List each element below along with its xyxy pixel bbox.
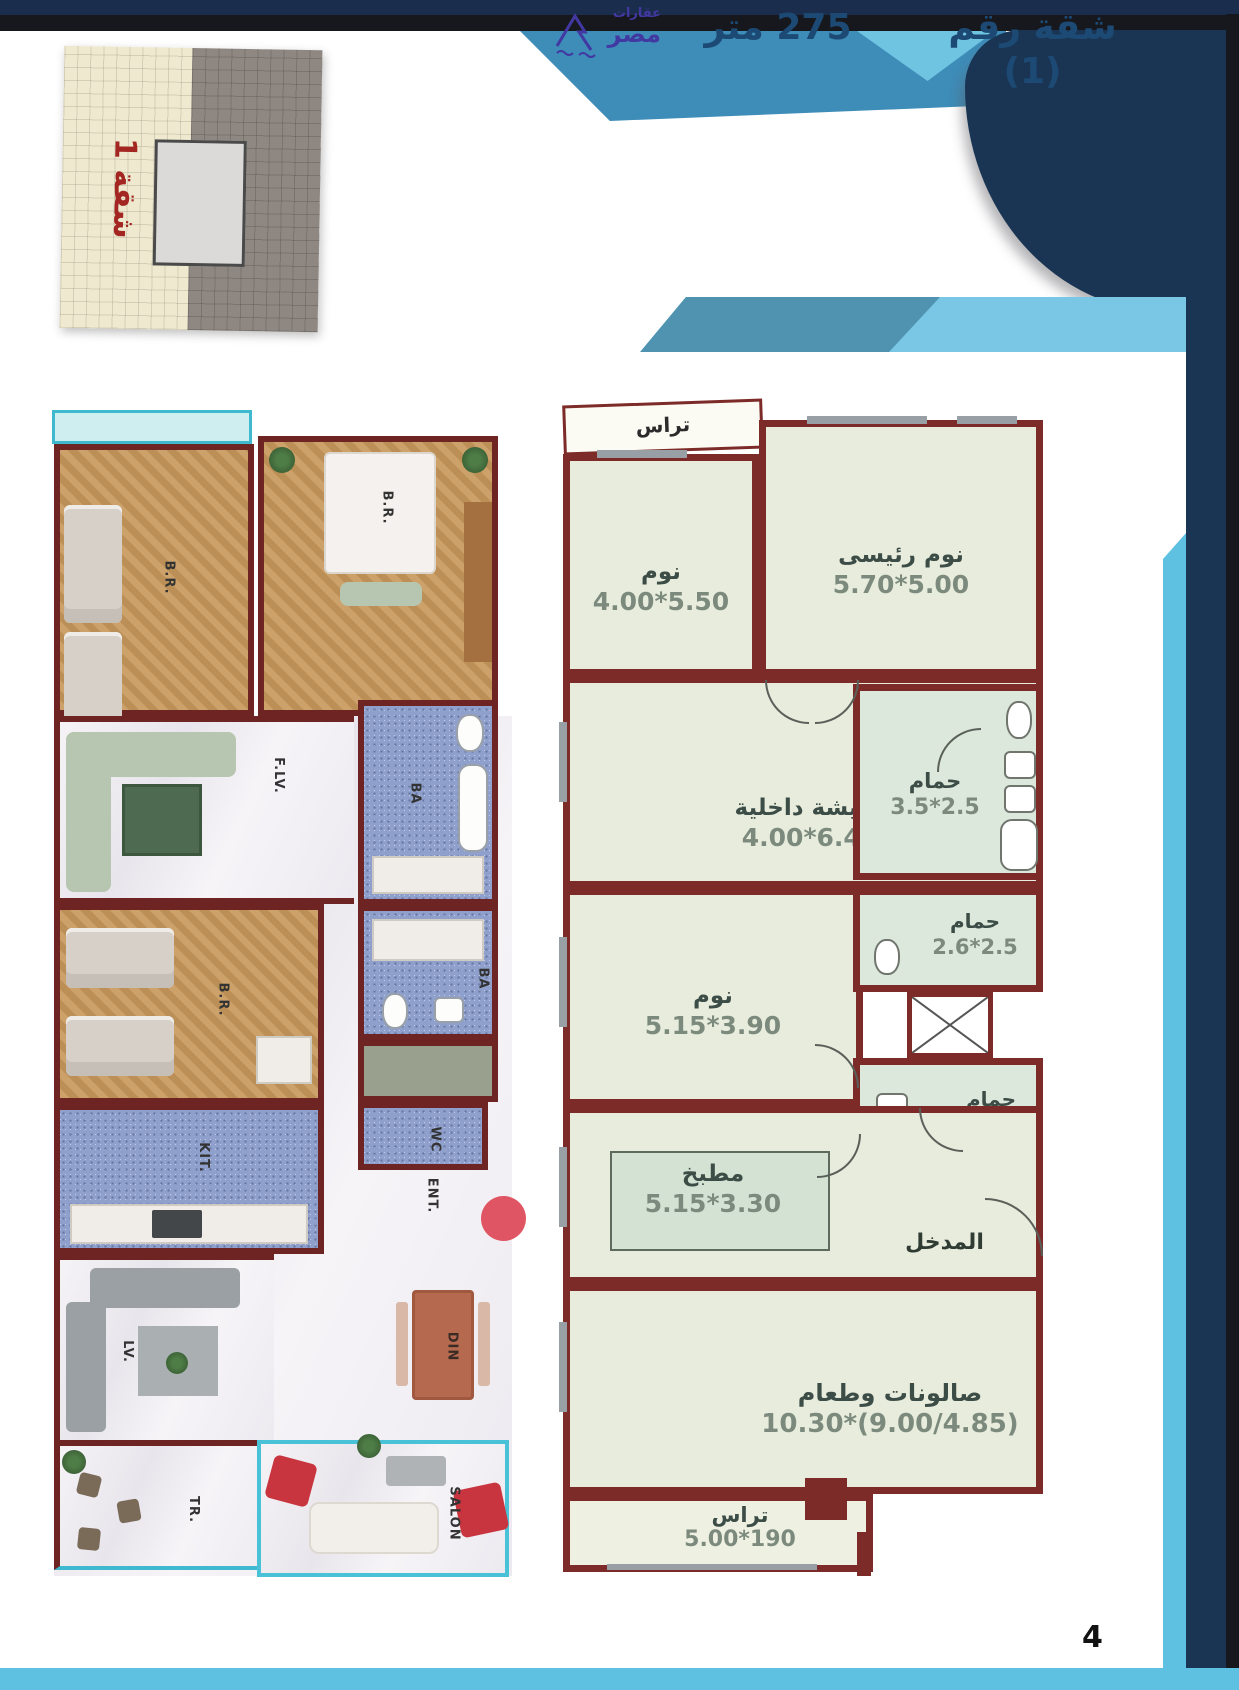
page-number: 4 [1082,1620,1103,1655]
bed-bench [340,582,422,606]
room-name: حمام [910,909,1040,933]
room-label: نوم رئيسى 5.70*5.00 [766,542,1036,599]
room-name: تراس [566,410,761,441]
room-salons-dining: صالونات وطعام 10.30*(9.00/4.85) [563,1284,1043,1494]
room-name: نوم [570,559,752,585]
room-dims: 2.6*2.5 [910,935,1040,959]
key-plan-label: شقة 1 [106,137,143,238]
apartment-number-title: شقة رقم (1) [935,6,1130,50]
room-name: نوم رئيسى [766,542,1036,568]
room-dims: 4.00*5.50 [570,587,752,616]
sofa [66,1302,106,1432]
room-name: مطبخ [570,1161,856,1187]
brochure-page: عقارات مصر شقة رقم (1) 275 متر شقة 1 ترا… [0,0,1239,1690]
bathroom-b-3d: BA [358,905,498,1040]
sofa [66,732,236,777]
balcony-strip [52,410,252,444]
room-tag: LV. [120,1340,135,1363]
room-label: حمام 2.6*2.5 [910,909,1040,959]
sink-fixture [1004,785,1036,813]
right-black-border [1226,14,1239,1690]
dining-chairs [478,1302,490,1386]
room-bathroom-2: حمام 2.6*2.5 [853,888,1043,992]
shaft-x-icon [912,997,988,1053]
room-dims: 10.30*(9.00/4.85) [730,1409,1050,1439]
toilet-fixture [382,993,408,1029]
coffee-table [386,1456,446,1486]
logo-word-large: مصر [608,20,661,48]
window [559,722,567,802]
terrace-chair [77,1527,101,1551]
living-3d: LV. [54,1254,274,1449]
room-dims: 5.15*3.90 [570,1011,856,1040]
room-master-bedroom: نوم رئيسى 5.70*5.00 [759,420,1043,676]
room-name: صالونات وطعام [730,1379,1050,1407]
dining-table: DIN [412,1290,474,1400]
rendered-floor-plan: B.R. B.R. F.LV. BA [42,392,514,1577]
room-bathroom-1: حمام 3.5*2.5 [853,684,1043,880]
room-tag: SALON [447,1486,462,1540]
title-banner-dark-segment [640,297,940,352]
title-banner [640,297,1186,352]
room-tag: B.R. [216,982,231,1016]
bed [66,928,174,988]
room-label: تراس [566,410,761,441]
salon-sofa [309,1502,439,1554]
rug [122,784,202,856]
bottom-light-blue-bar [0,1668,1239,1690]
family-living-3d: F.LV. [54,716,354,904]
room-bedroom-1: نوم 4.00*5.50 [563,454,759,676]
window [597,450,687,458]
stove [152,1210,202,1238]
terrace-3d: TR. [54,1440,290,1570]
window [957,416,1017,424]
room-tag: BA [475,968,490,990]
room-tag: DIN [444,1332,459,1362]
sink-fixture [434,997,464,1023]
vanity [372,919,484,961]
room-tag: ENT. [424,1178,439,1214]
vanity [372,856,484,894]
wardrobe [464,502,492,662]
bathroom-a-3d: BA [358,700,498,905]
schematic-floor-plan: تراس نوم 4.00*5.50 نوم رئيسى 5.70*5.00 م… [557,392,1047,1577]
plant [62,1450,86,1474]
right-navy-band [1186,30,1226,1690]
plant [462,447,488,473]
room-dims: 5.70*5.00 [766,570,1036,599]
toilet-fixture [874,939,900,975]
plant [166,1352,188,1374]
desk [256,1036,312,1084]
room-label: مطبخ 5.15*3.30 [570,1161,856,1218]
bed [66,1016,174,1076]
sink-fixture [1004,751,1036,779]
room-tag: B.R. [162,560,177,594]
key-plan-thumbnail: شقة 1 [60,46,323,332]
toilet-fixture [1006,701,1032,739]
window [559,1147,567,1227]
room-kitchen: مطبخ 5.15*3.30 [563,1106,863,1284]
dressing-3d [358,1040,498,1102]
logo-word-small: عقارات [613,6,661,21]
room-label: نوم 4.00*5.50 [570,559,752,616]
room-dims: 3.5*2.5 [870,795,1000,820]
wc-3d: WC [358,1102,488,1170]
logo-mountain-icon [553,6,605,60]
terrace-chair [116,1498,141,1523]
room-terrace-top: تراس [562,399,764,456]
kitchen-3d: KIT. [54,1104,324,1254]
room-label: صالونات وطعام 10.30*(9.00/4.85) [730,1379,1050,1439]
wall-jog [805,1478,847,1520]
room-label: حمام 3.5*2.5 [870,769,1000,820]
toilet-fixture [456,714,484,752]
window [807,416,927,424]
wall-jog [857,1532,871,1576]
bed [64,505,122,623]
room-label: نوم 5.15*3.90 [570,983,856,1040]
room-tag: BA [407,783,422,805]
room-tag: WC [427,1127,442,1153]
room-tag: F.LV. [271,757,286,794]
window [559,1322,567,1412]
company-logo: عقارات مصر [553,6,663,64]
entrance-marker-dot [481,1196,526,1241]
room-tag: KIT. [196,1142,211,1173]
room-name: نوم [570,983,856,1009]
bedroom-2-3d: B.R. [258,436,498,716]
terrace-chair [76,1472,103,1499]
plant [269,447,295,473]
apartment-area-title: 275 متر [693,6,863,50]
bathtub-fixture [1000,819,1038,871]
room-name: حمام [870,769,1000,793]
right-light-blue-strip [1163,533,1186,1690]
salon-3d: SALON [257,1440,509,1577]
bedroom-3-3d: B.R. [54,904,324,1104]
sofa [90,1268,240,1308]
room-tag: B.R. [380,490,395,524]
plant [357,1434,381,1458]
room-dims: 5.15*3.30 [570,1189,856,1218]
key-plan-label-wrap: شقة 1 [65,102,184,274]
window [607,1564,817,1570]
shaft-box [907,992,993,1058]
window [559,937,567,1027]
bedroom-1-3d: B.R. [54,444,254,716]
dining-chairs [396,1302,408,1386]
room-dims: 5.00*190 [640,1527,840,1552]
salon-armchair [264,1454,318,1508]
room-tag: TR. [186,1496,201,1523]
bathtub-fixture [458,764,488,852]
